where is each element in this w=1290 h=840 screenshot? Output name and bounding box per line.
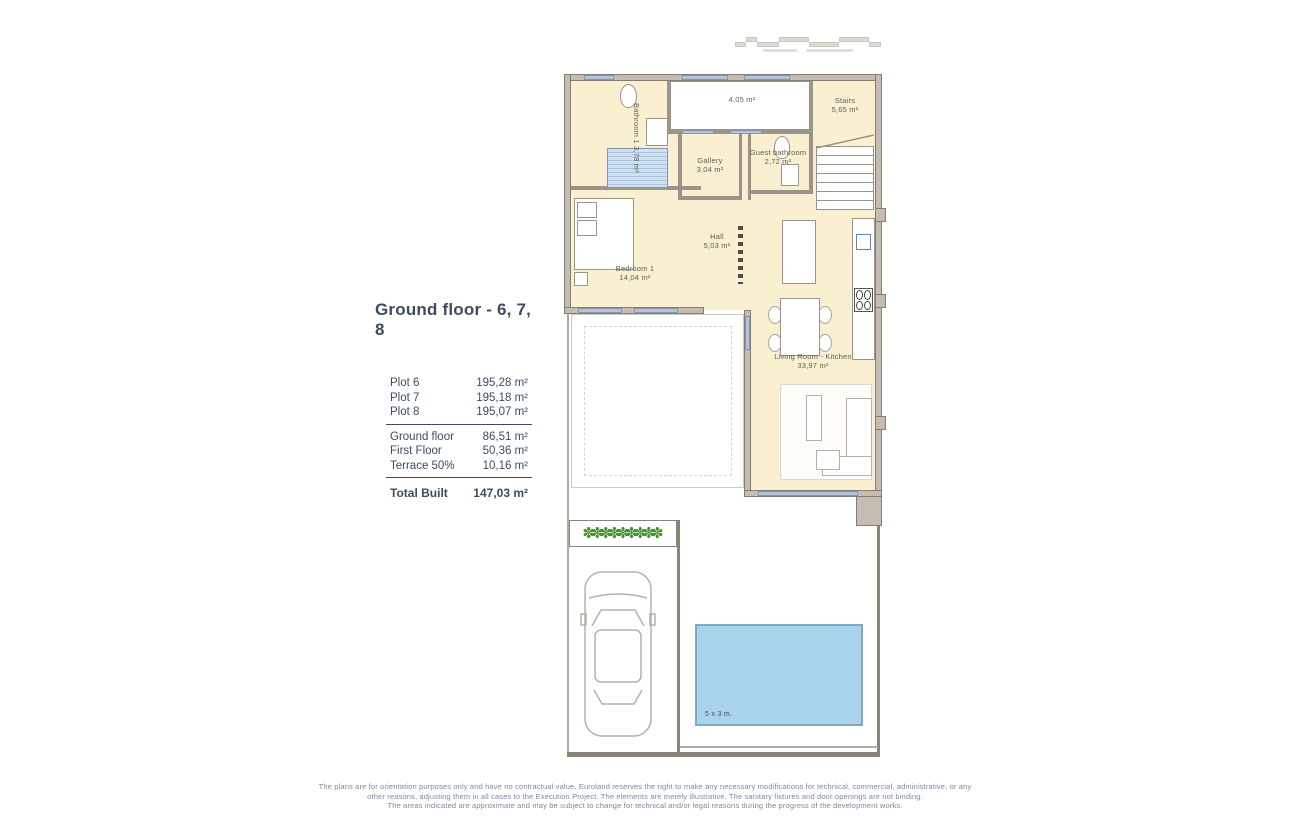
area-summary-table: Plot 6195,28 m² Plot 7195,18 m² Plot 819… [390,376,528,501]
window [682,130,714,134]
disclaimer-line: other reasons, adjusting them in all cas… [185,792,1105,802]
room-label-bedroom1: Bedroom 1 14,04 m² [590,264,680,282]
wall-block [856,496,882,526]
disclaimer-line: The areas indicated are approximate and … [185,801,1105,811]
plot-boundary [877,496,880,754]
table-row-total: Total Built147,03 m² [390,486,528,501]
window [634,308,678,313]
table-divider [386,424,532,425]
room-label-stairs: Stairs 5,65 m² [808,96,882,114]
sink-icon [781,164,799,186]
porch-room [670,81,812,130]
floorplan-page: Ground floor - 6, 7, 8 Plot 6195,28 m² P… [0,0,1290,840]
room-label-living: Living Room - Kitchen 33,97 m² [756,352,870,370]
room-label-hall: Hall 5,03 m² [692,232,742,250]
table-row: Terrace 50%10,16 m² [390,459,528,474]
nightstand [574,272,588,286]
room-label-porch: 4,05 m² [702,95,782,104]
table-row: Plot 8195,07 m² [390,405,528,420]
table-row: First Floor50,36 m² [390,444,528,459]
chair [818,334,832,352]
wall-pillar [875,208,886,222]
planting-strip: ✽✽✽✽✽✽✽✽✽ [569,520,677,547]
table-row: Plot 6195,28 m² [390,376,528,391]
patio-step-line [680,746,878,748]
terrace-dashed-outline [584,326,732,476]
disclaimer-line: The plans are for orientation purposes o… [185,782,1105,792]
plot-divider [677,520,680,756]
window [744,75,790,80]
car-icon [580,568,656,740]
partition [678,196,742,200]
wall-pillar [875,294,886,308]
plant-icon: ✽ [651,526,664,541]
room-label-guest-bathroom: Guest bathroom 2,72 m² [746,148,810,166]
window [584,75,614,80]
wall [875,74,882,498]
kitchen-island [782,220,816,284]
tv-unit [806,395,822,441]
scale-caption [763,49,853,52]
table-row: Plot 7195,18 m² [390,391,528,406]
stairs-treads [816,146,874,210]
partition [751,190,813,194]
dining-table [780,298,820,356]
pool: 5 x 3 m. [695,624,863,726]
table-divider [386,477,532,478]
page-title: Ground floor - 6, 7, 8 [375,300,545,340]
bed-pillow [577,220,597,236]
pool-size-label: 5 x 3 m. [705,711,732,718]
chair [818,306,832,324]
bed-pillow [577,202,597,218]
sliding-door-window [758,491,858,496]
kitchen-sink-icon [856,234,871,250]
wall-pillar [875,416,886,430]
plot-boundary [567,752,880,757]
disclaimer: The plans are for orientation purposes o… [185,782,1105,811]
title-block: Ground floor - 6, 7, 8 Plot 6195,28 m² P… [375,300,545,501]
stove-icon [854,288,873,312]
table-row: Ground floor86,51 m² [390,430,528,445]
graphic-scale-bar [735,34,881,50]
wall [564,74,571,314]
coffee-table [816,450,840,470]
window [682,75,728,80]
room-label-bathroom1: Bathroom 1 3,78 m² [632,96,641,180]
room-label-gallery: Gallery 3,04 m² [679,156,741,174]
floor-plan: ✽✽✽✽✽✽✽✽✽ 5 x 3 m. Bathroom 1 3,78 m² 4,… [560,68,912,768]
stairs-cut-line [816,132,874,150]
sink-icon [646,118,668,146]
window [578,308,622,313]
window [745,316,750,350]
window [730,130,762,134]
